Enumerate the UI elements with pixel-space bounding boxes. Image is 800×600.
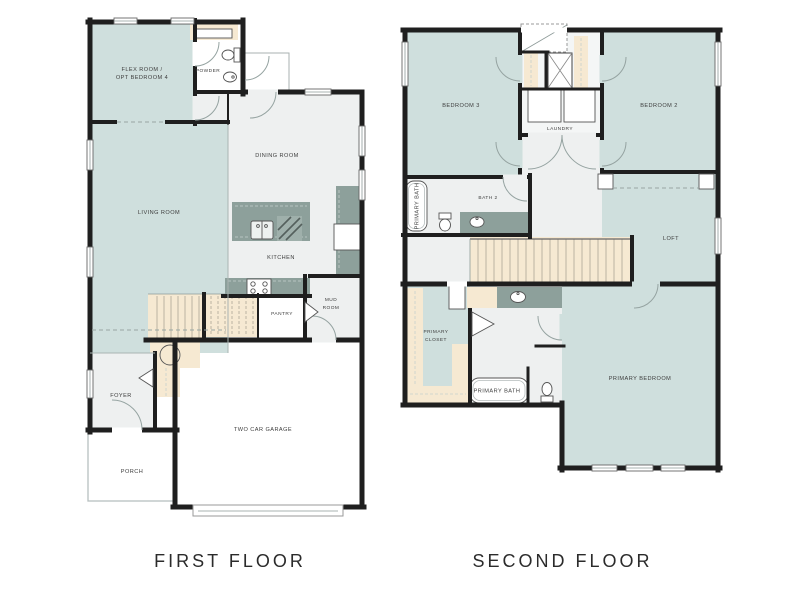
center-closets [521,24,595,122]
label-pantry: PANTRY [271,311,293,317]
label-powder: POWDER [196,68,220,74]
label-flex-room-2: OPT BEDROOM 4 [116,75,168,81]
second-floor-plan: BEDROOM 3 BEDROOM 2 LAUNDRY BATH 2 LOFT … [395,10,730,520]
room-foyer [90,353,155,430]
label-dining-room: DINING ROOM [255,153,298,159]
label-loft: LOFT [663,236,679,242]
dryer [564,90,595,122]
stair-landing [405,237,470,284]
label-foyer: FOYER [110,393,132,399]
closet-door [449,284,465,309]
toilet [234,48,240,62]
label-primary-bath: PRIMARY BATH [474,389,521,395]
label-kitchen: KITCHEN [267,255,295,261]
bath2-toilet-tank [439,213,451,219]
stove [247,279,271,295]
label-bedroom3: BEDROOM 3 [442,103,480,109]
stairs-flight2 [204,294,258,337]
room-pantry [258,296,305,340]
powder-shelf [195,29,232,38]
label-bath2: BATH 2 [478,195,497,201]
label-flex-room: FLEX ROOM / [121,67,162,73]
stairs-flight1 [148,294,204,340]
primary-sink [511,292,526,303]
label-garage: TWO CAR GARAGE [234,427,292,433]
primary-toilet [542,383,552,396]
first-floor-plan: FLEX ROOM / OPT BEDROOM 4 POWDER DINING … [80,10,380,525]
room-porch [88,430,175,501]
label-mud-room: MUD [325,297,337,303]
label-primary-bedroom: PRIMARY BEDROOM [609,376,672,382]
floor-plan-sheet: FLEX ROOM / OPT BEDROOM 4 POWDER DINING … [0,0,800,600]
bath-linen [467,287,497,308]
room-bedroom2 [602,30,718,172]
label-living-room: LIVING ROOM [138,210,180,216]
refrigerator [334,224,360,250]
label-bedroom2: BEDROOM 2 [640,103,678,109]
label-primary-closet: PRIMARY [424,329,449,335]
label-primary-closet-2: CLOSET [425,337,447,343]
bath2-toilet [440,219,451,231]
entry-closet [241,53,289,92]
primary-toilet-tank [541,396,553,402]
label-laundry: LAUNDRY [547,126,573,132]
first-floor-title: FIRST FLOOR [80,549,380,573]
room-flex [90,22,195,124]
second-floor-title: SECOND FLOOR [395,549,730,573]
label-primary-bath-tub: PRIMARY BATH [415,183,421,230]
washer [528,90,561,122]
bath2-sink [470,217,484,227]
label-mud-room-2: ROOM [323,305,340,311]
hall [520,135,602,237]
primary-bath-counter [497,287,562,308]
label-porch: PORCH [121,469,143,475]
garage-door [193,505,343,516]
toilet-bowl [222,50,234,60]
